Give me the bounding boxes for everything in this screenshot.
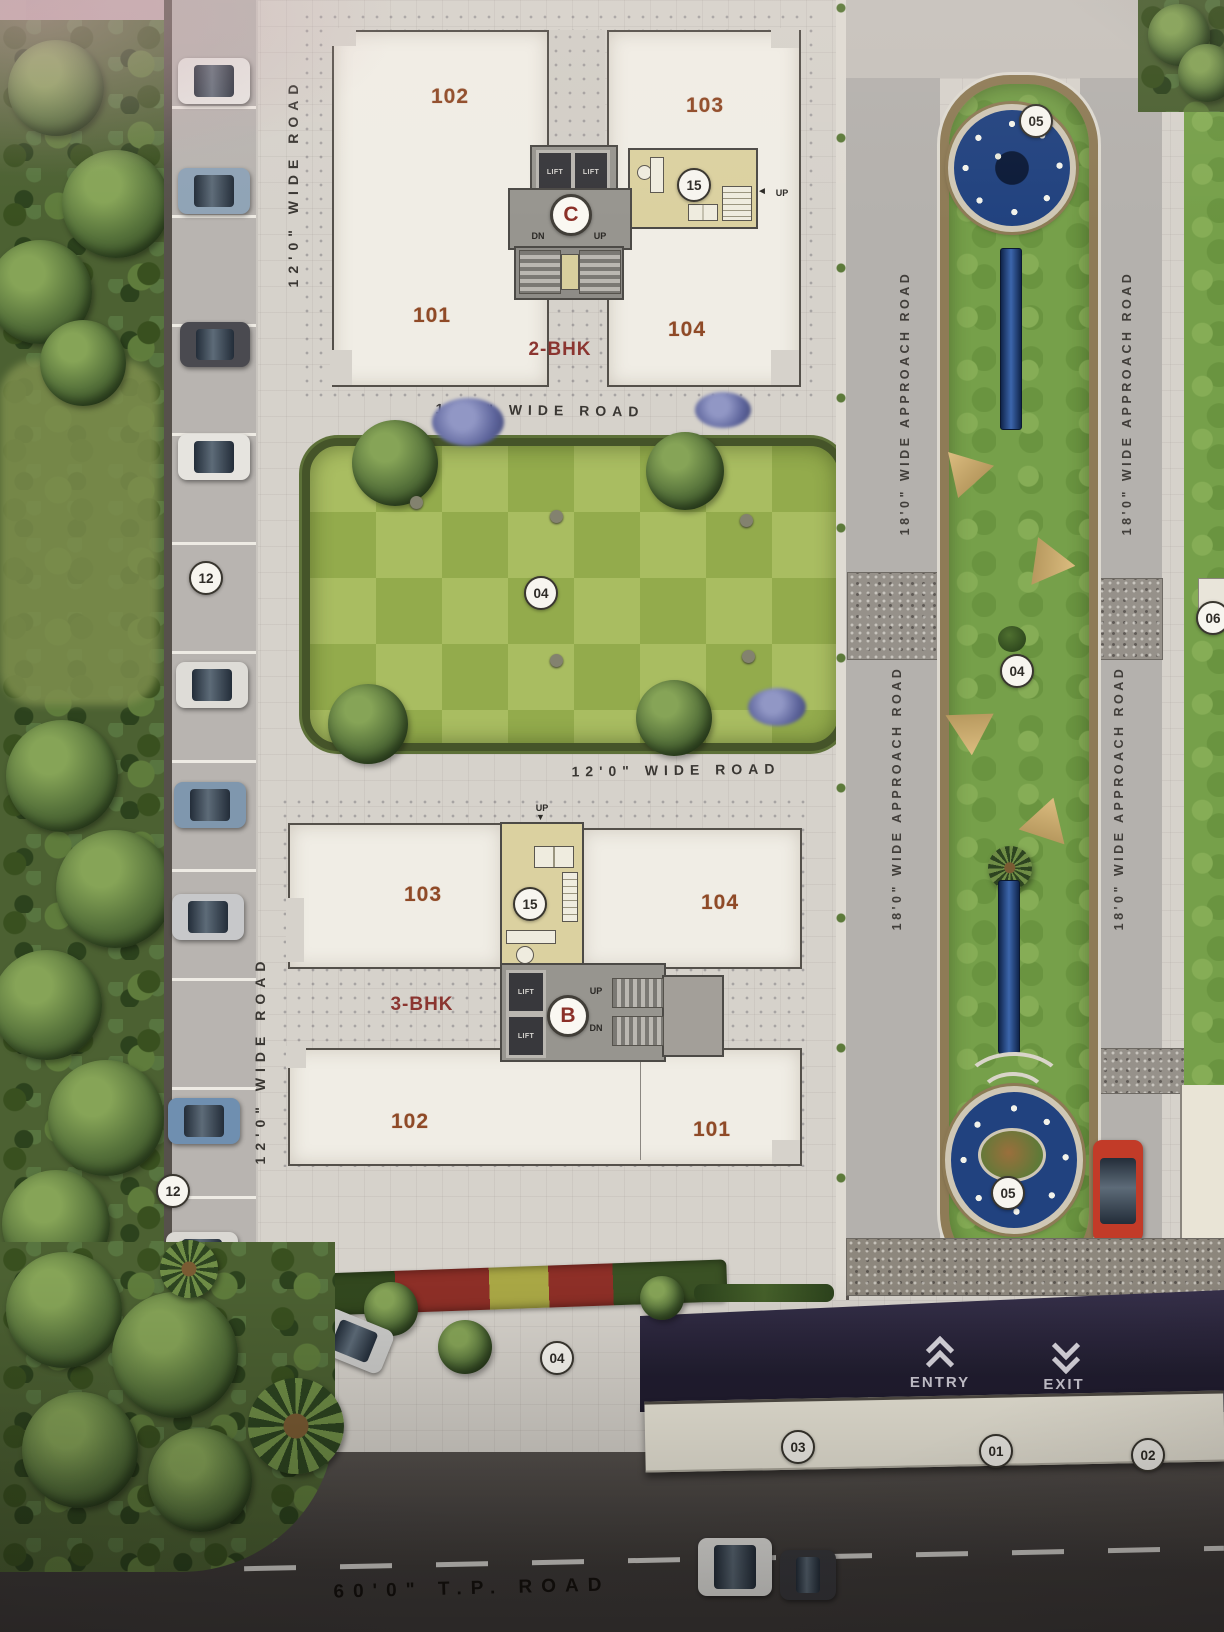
tree: [6, 1252, 122, 1368]
unit-label: 102: [431, 85, 469, 109]
road-car-white: [698, 1538, 772, 1596]
tree: [6, 720, 118, 832]
entry-arrow-icon: ▼: [536, 812, 545, 822]
paver-crossing: [1084, 1048, 1186, 1094]
approach-road-label: 18'0" WIDE APPROACH ROAD: [898, 248, 912, 558]
tree: [40, 320, 126, 406]
entry-arrow-icon: ◄: [757, 186, 767, 197]
left-lawn-patch: [0, 360, 158, 705]
unit-label: 101: [413, 304, 451, 328]
exit-label: EXIT: [1043, 1376, 1084, 1393]
building-b-wing-bottom: [288, 1048, 802, 1166]
parked-car: [174, 782, 246, 828]
building-b-stair-up: UP: [590, 986, 603, 996]
lawn-badge: 04: [524, 576, 558, 610]
red-car: [1093, 1140, 1143, 1242]
building-b-wing-103: [288, 823, 504, 969]
unit-label: 104: [668, 318, 706, 342]
parked-car: [178, 434, 250, 480]
site-plan-photo: 12'0" WIDE ROAD 12'0" WIDE ROAD LIFT LIF…: [0, 0, 1224, 1632]
fountain-bottom-badge: 05: [991, 1176, 1025, 1210]
lawn-shrub: [550, 654, 563, 667]
block-c-badge: C: [550, 194, 592, 236]
boundary-badge: 02: [1131, 1438, 1165, 1472]
building-c-central-walk: [549, 30, 605, 148]
unit-label: 103: [686, 94, 724, 118]
parked-car: [172, 894, 244, 940]
building-b-wing-104: [580, 828, 802, 969]
road-label-mid-bottom: 12'0" WIDE ROAD: [556, 760, 796, 779]
road-label-left-bottom: 12'0" WIDE ROAD: [252, 935, 268, 1185]
block-b-badge: B: [547, 995, 589, 1037]
flower-bush: [695, 392, 751, 428]
lawn-shrub: [550, 510, 563, 523]
building-b-core-wing: [662, 975, 724, 1057]
tree: [22, 1392, 138, 1508]
boundary-badge: 01: [979, 1434, 1013, 1468]
lawn-tree: [636, 680, 712, 756]
flat-15-badge: 15: [513, 887, 547, 921]
unit-label: 102: [391, 1110, 429, 1134]
parked-car: [178, 168, 250, 214]
fountain-top-badge: 05: [1019, 104, 1053, 138]
lawn-tree: [646, 432, 724, 510]
tree: [48, 1060, 164, 1176]
median-bush: [998, 626, 1026, 652]
tree: [438, 1320, 492, 1374]
tree: [148, 1428, 252, 1532]
approach-road-label: 18'0" WIDE APPROACH ROAD: [1112, 643, 1126, 953]
parking-badge: 12: [156, 1174, 190, 1208]
building-c-entry-up: UP: [776, 188, 789, 198]
lawn-shrub: [410, 496, 423, 509]
building-b-lift-1: LIFT: [506, 970, 546, 1014]
gate-paving-band: [846, 1238, 1224, 1296]
tree: [640, 1276, 684, 1320]
building-b-lift-2: LIFT: [506, 1014, 546, 1058]
building-c-type: 2-BHK: [528, 339, 591, 361]
water-channel-bottom: [998, 880, 1020, 1054]
fountain-centerpiece: [978, 1128, 1046, 1182]
unit-label: 103: [404, 883, 442, 907]
tree: [8, 40, 104, 136]
lawn-shrub: [742, 650, 755, 663]
lawn-shrub: [740, 514, 753, 527]
parked-car: [168, 1098, 240, 1144]
flower-bush: [748, 688, 806, 726]
approach-road-label: 18'0" WIDE APPROACH ROAD: [890, 643, 904, 953]
road-car-dark: [780, 1550, 836, 1600]
median-lawn-badge: 04: [1000, 654, 1034, 688]
road-label-left-top: 12'0" WIDE ROAD: [285, 58, 301, 308]
right-plot-badge: 06: [1196, 601, 1224, 635]
fountain-top: [948, 104, 1076, 232]
building-b-type: 3-BHK: [390, 994, 453, 1016]
flower-bush: [432, 398, 504, 446]
building-c-stair-dn: DN: [532, 231, 545, 241]
boundary-badge: 03: [781, 1430, 815, 1464]
building-c-stair-up: UP: [594, 231, 607, 241]
parked-car: [176, 662, 248, 708]
building-b-stair-dn: DN: [590, 1023, 603, 1033]
unit-label: 101: [693, 1118, 731, 1142]
gate-hedge: [694, 1284, 834, 1302]
palm-tree: [248, 1378, 344, 1474]
unit-label: 104: [701, 891, 739, 915]
entrance-garden-badge: 04: [540, 1341, 574, 1375]
approach-road-label: 18'0" WIDE APPROACH ROAD: [1120, 248, 1134, 558]
parking-badge: 12: [189, 561, 223, 595]
tree: [62, 150, 170, 258]
palm-tree: [160, 1240, 218, 1298]
lawn-tree: [352, 420, 438, 506]
tree: [112, 1292, 238, 1418]
parked-car: [178, 58, 250, 104]
parked-car: [180, 322, 250, 367]
water-channel-top: [1000, 248, 1022, 430]
lawn-tree: [328, 684, 408, 764]
entry-label: ENTRY: [910, 1374, 970, 1391]
flat-15-badge: 15: [677, 168, 711, 202]
tree: [56, 830, 174, 948]
